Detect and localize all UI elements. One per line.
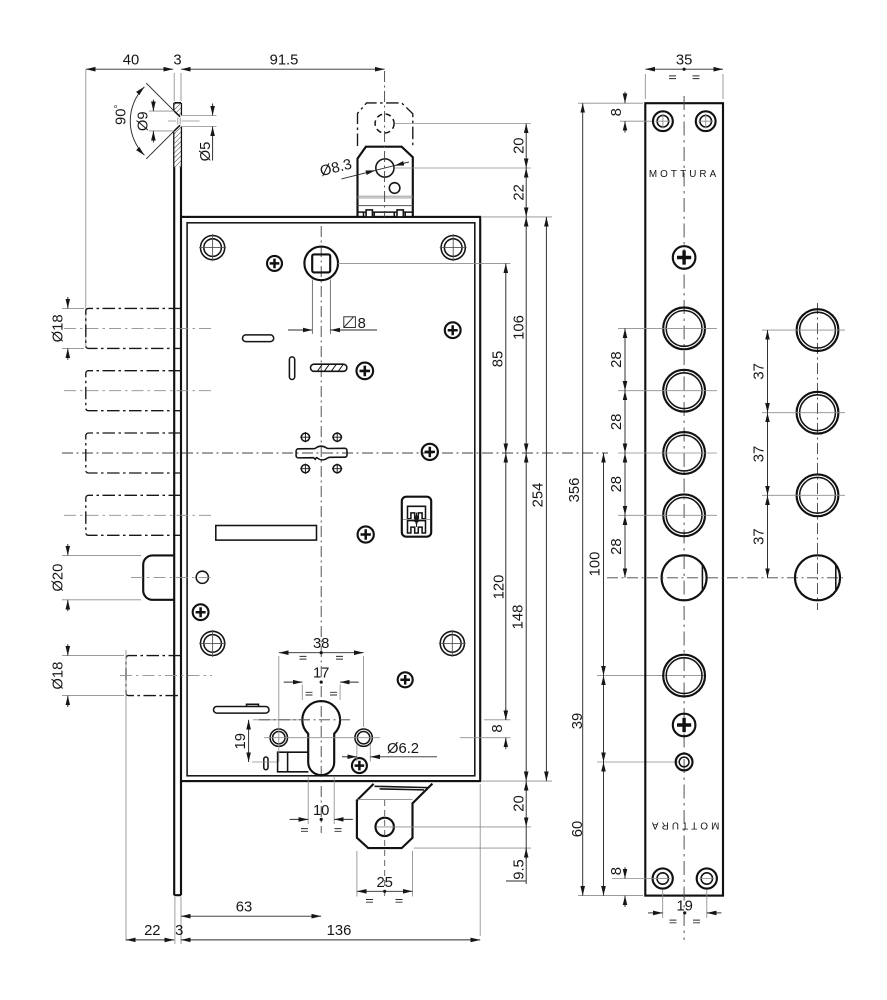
svg-text:28: 28 [609,351,625,367]
svg-text:8: 8 [609,867,625,875]
svg-text:39: 39 [570,713,586,729]
svg-text:17: 17 [313,666,329,682]
svg-text:356: 356 [567,478,583,503]
svg-text:Ø18: Ø18 [51,662,67,690]
svg-text:8: 8 [358,316,366,332]
svg-text:60: 60 [570,821,586,837]
svg-text:MOTTURA: MOTTURA [649,820,720,831]
svg-text:Ø9: Ø9 [135,111,151,131]
svg-text:28: 28 [609,538,625,554]
svg-text:Ø6.2: Ø6.2 [387,741,419,757]
svg-text:MOTTURA: MOTTURA [649,169,720,180]
svg-text:91.5: 91.5 [270,53,299,69]
svg-text:25: 25 [376,875,392,891]
svg-text:22: 22 [512,184,528,200]
svg-text:28: 28 [609,476,625,492]
svg-text:37: 37 [752,446,768,462]
svg-text:85: 85 [491,351,507,367]
svg-text:Ø5: Ø5 [198,142,214,162]
svg-text:8: 8 [609,108,625,116]
svg-text:37: 37 [752,363,768,379]
svg-text:63: 63 [236,900,252,916]
svg-text:28: 28 [609,414,625,430]
svg-text:254: 254 [531,483,547,508]
svg-text:120: 120 [491,575,507,600]
svg-text:40: 40 [123,53,139,69]
svg-text:35: 35 [676,53,692,69]
svg-text:37: 37 [752,528,768,544]
svg-text:19: 19 [676,898,692,914]
svg-text:20: 20 [512,795,528,811]
svg-text:106: 106 [512,315,528,340]
svg-text:19: 19 [233,733,249,749]
svg-text:38: 38 [313,636,329,652]
svg-text:148: 148 [510,605,526,630]
svg-text:136: 136 [327,923,352,939]
svg-text:8: 8 [490,724,506,732]
svg-text:20: 20 [512,137,528,153]
svg-text:Ø18: Ø18 [51,314,67,342]
svg-text:3: 3 [173,53,181,69]
svg-text:10: 10 [313,803,329,819]
svg-text:3: 3 [175,923,183,939]
svg-text:100: 100 [588,552,604,577]
svg-text:9.5: 9.5 [512,859,528,880]
svg-text:22: 22 [144,923,160,939]
svg-text:Ø20: Ø20 [51,564,67,592]
